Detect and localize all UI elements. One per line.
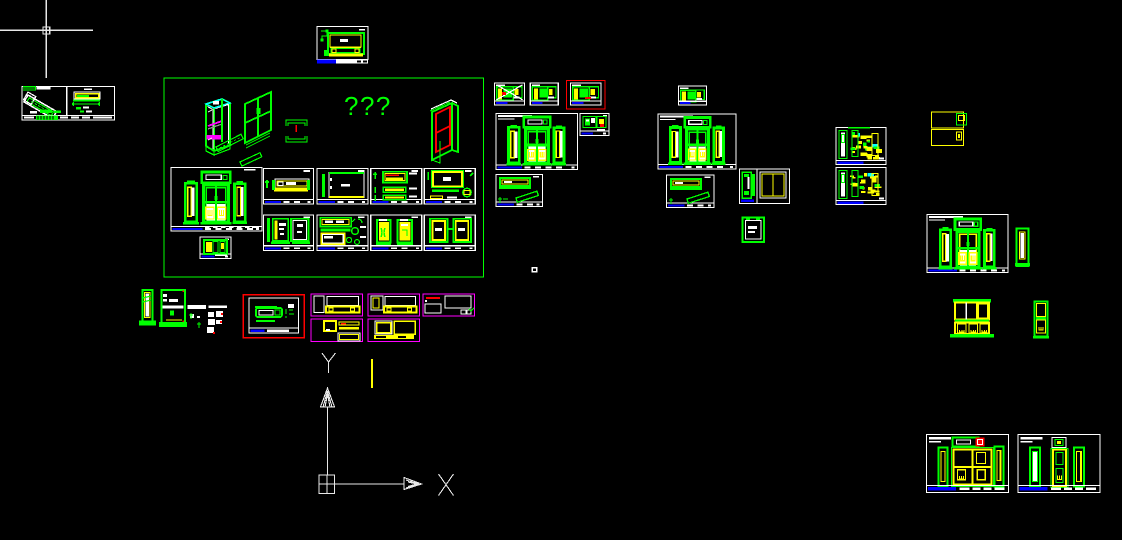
svg-text:???: ??? [344, 91, 392, 121]
